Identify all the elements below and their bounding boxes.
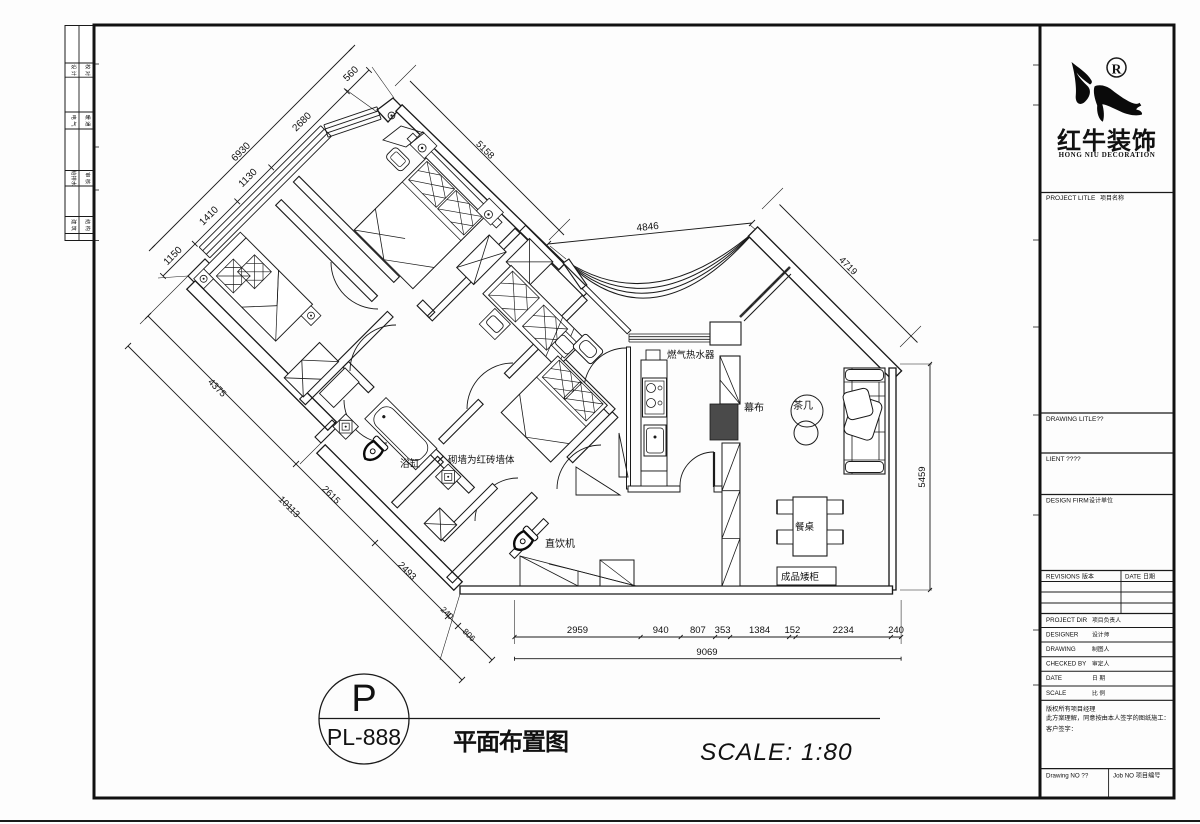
svg-text:240: 240 bbox=[888, 625, 904, 636]
svg-text:砌墙为红砖墙体: 砌墙为红砖墙体 bbox=[448, 454, 515, 466]
svg-text:暖 通: 暖 通 bbox=[84, 115, 92, 128]
svg-text:PL-888: PL-888 bbox=[327, 724, 401, 750]
svg-text:Job NO 项目编号: Job NO 项目编号 bbox=[1113, 772, 1160, 780]
svg-text:给排水: 给排水 bbox=[70, 170, 78, 186]
svg-text:DATE: DATE bbox=[1046, 675, 1062, 682]
svg-text:日期: 日期 bbox=[1143, 573, 1155, 581]
svg-text:SCALE: SCALE bbox=[1046, 690, 1066, 697]
svg-text:P: P bbox=[351, 678, 376, 720]
svg-text:LIENT ????: LIENT ???? bbox=[1046, 456, 1081, 463]
svg-text:DRAWING LITLE??: DRAWING LITLE?? bbox=[1046, 416, 1104, 423]
svg-text:REVISIONS: REVISIONS bbox=[1046, 574, 1080, 581]
svg-text:幕布: 幕布 bbox=[744, 401, 764, 414]
svg-text:设计单位: 设计单位 bbox=[1089, 497, 1113, 505]
svg-text:电 气: 电 气 bbox=[70, 115, 78, 127]
svg-text:日 期: 日 期 bbox=[1092, 675, 1105, 682]
svg-text:成品矮柜: 成品矮柜 bbox=[781, 571, 820, 583]
svg-text:建 筑: 建 筑 bbox=[70, 219, 78, 232]
svg-text:审 核: 审 核 bbox=[84, 172, 92, 184]
svg-text:餐桌: 餐桌 bbox=[795, 521, 815, 533]
svg-text:平面布置图: 平面布置图 bbox=[453, 728, 568, 756]
svg-text:1384: 1384 bbox=[749, 625, 770, 636]
svg-text:项目负责人: 项目负责人 bbox=[1092, 616, 1121, 624]
svg-text:SCALE: 1:80: SCALE: 1:80 bbox=[700, 739, 853, 766]
svg-text:2959: 2959 bbox=[567, 625, 588, 636]
svg-text:353: 353 bbox=[715, 625, 731, 636]
svg-text:结 构: 结 构 bbox=[84, 219, 92, 231]
svg-text:设 计: 设 计 bbox=[70, 64, 78, 76]
svg-text:2234: 2234 bbox=[833, 625, 854, 636]
svg-text:审定人: 审定人 bbox=[1092, 660, 1110, 668]
svg-text:燃气热水器: 燃气热水器 bbox=[667, 349, 715, 361]
svg-text:807: 807 bbox=[690, 625, 706, 636]
svg-text:版本: 版本 bbox=[1082, 573, 1094, 581]
svg-text:直饮机: 直饮机 bbox=[545, 537, 575, 550]
svg-text:设计师: 设计师 bbox=[1092, 631, 1110, 639]
svg-text:R: R bbox=[1112, 62, 1122, 77]
svg-text:9069: 9069 bbox=[696, 647, 717, 658]
svg-text:940: 940 bbox=[653, 625, 669, 636]
svg-text:PROJECT DIR: PROJECT DIR bbox=[1046, 617, 1088, 624]
svg-text:制图人: 制图人 bbox=[1092, 645, 1110, 653]
svg-text:此方案理解，同意按由本人签字的图纸施工：: 此方案理解，同意按由本人签字的图纸施工： bbox=[1046, 714, 1170, 722]
svg-text:152: 152 bbox=[784, 625, 800, 636]
svg-text:DRAWING: DRAWING bbox=[1046, 646, 1076, 653]
svg-text:CHECKED BY: CHECKED BY bbox=[1046, 661, 1086, 668]
svg-text:比 例: 比 例 bbox=[1092, 689, 1105, 697]
svg-text:DESIGN FIRM: DESIGN FIRM bbox=[1046, 498, 1089, 505]
svg-text:HONG NIU DECORATION: HONG NIU DECORATION bbox=[1059, 151, 1156, 159]
svg-text:项目名称: 项目名称 bbox=[1100, 194, 1124, 202]
svg-text:茶几: 茶几 bbox=[793, 399, 813, 412]
svg-text:客户签字：: 客户签字： bbox=[1046, 725, 1077, 733]
svg-text:版权所有项目经理: 版权所有项目经理 bbox=[1046, 705, 1096, 713]
svg-text:Drawing NO ??: Drawing NO ?? bbox=[1046, 773, 1089, 780]
svg-text:浴缸: 浴缸 bbox=[400, 457, 420, 470]
svg-text:DATE: DATE bbox=[1125, 574, 1141, 581]
svg-text:5459: 5459 bbox=[917, 466, 928, 487]
svg-text:DESIGNER: DESIGNER bbox=[1046, 632, 1079, 639]
svg-text:PROJECT LITLE: PROJECT LITLE bbox=[1046, 195, 1096, 202]
svg-text:校 对: 校 对 bbox=[84, 64, 92, 76]
